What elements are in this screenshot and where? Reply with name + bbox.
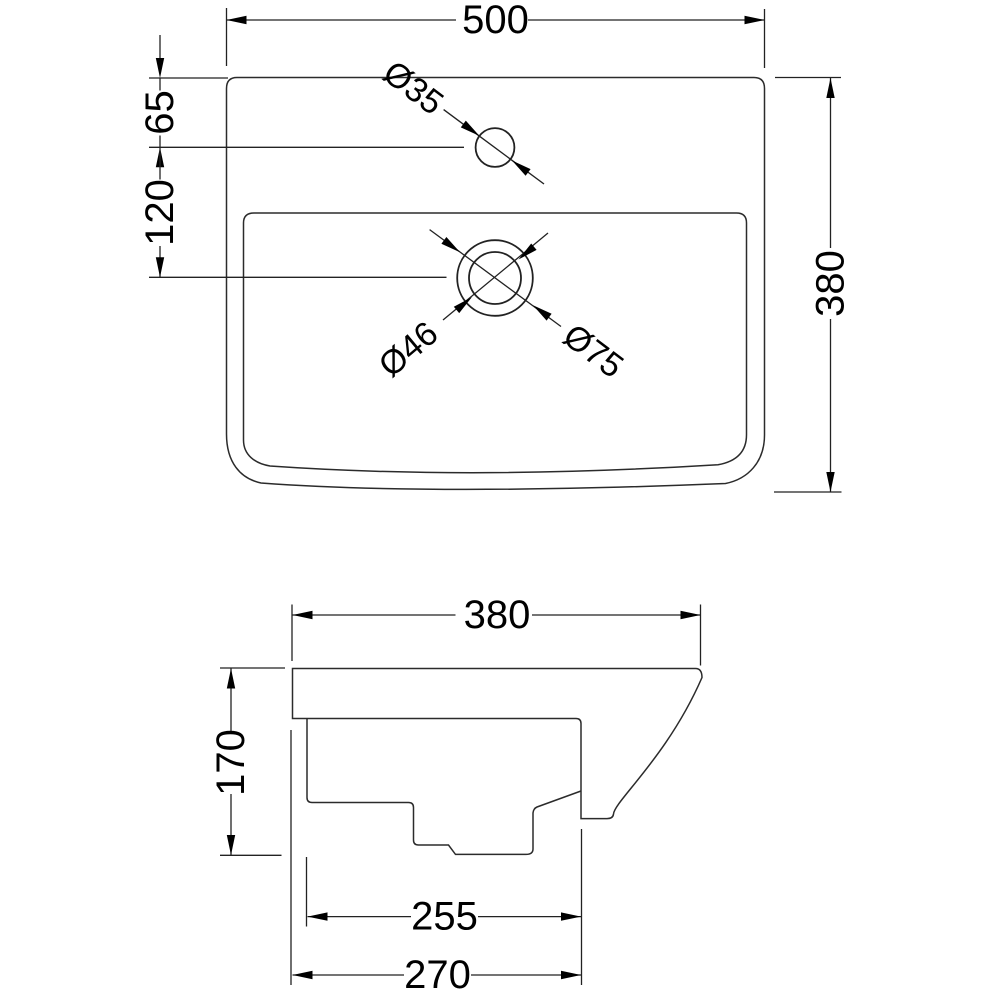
svg-text:65: 65: [138, 90, 182, 135]
svg-text:255: 255: [411, 895, 478, 939]
svg-text:120: 120: [138, 179, 182, 246]
svg-text:500: 500: [462, 0, 529, 42]
svg-text:380: 380: [464, 593, 531, 637]
svg-text:270: 270: [404, 953, 471, 997]
svg-text:380: 380: [809, 250, 853, 317]
svg-text:170: 170: [209, 729, 253, 796]
